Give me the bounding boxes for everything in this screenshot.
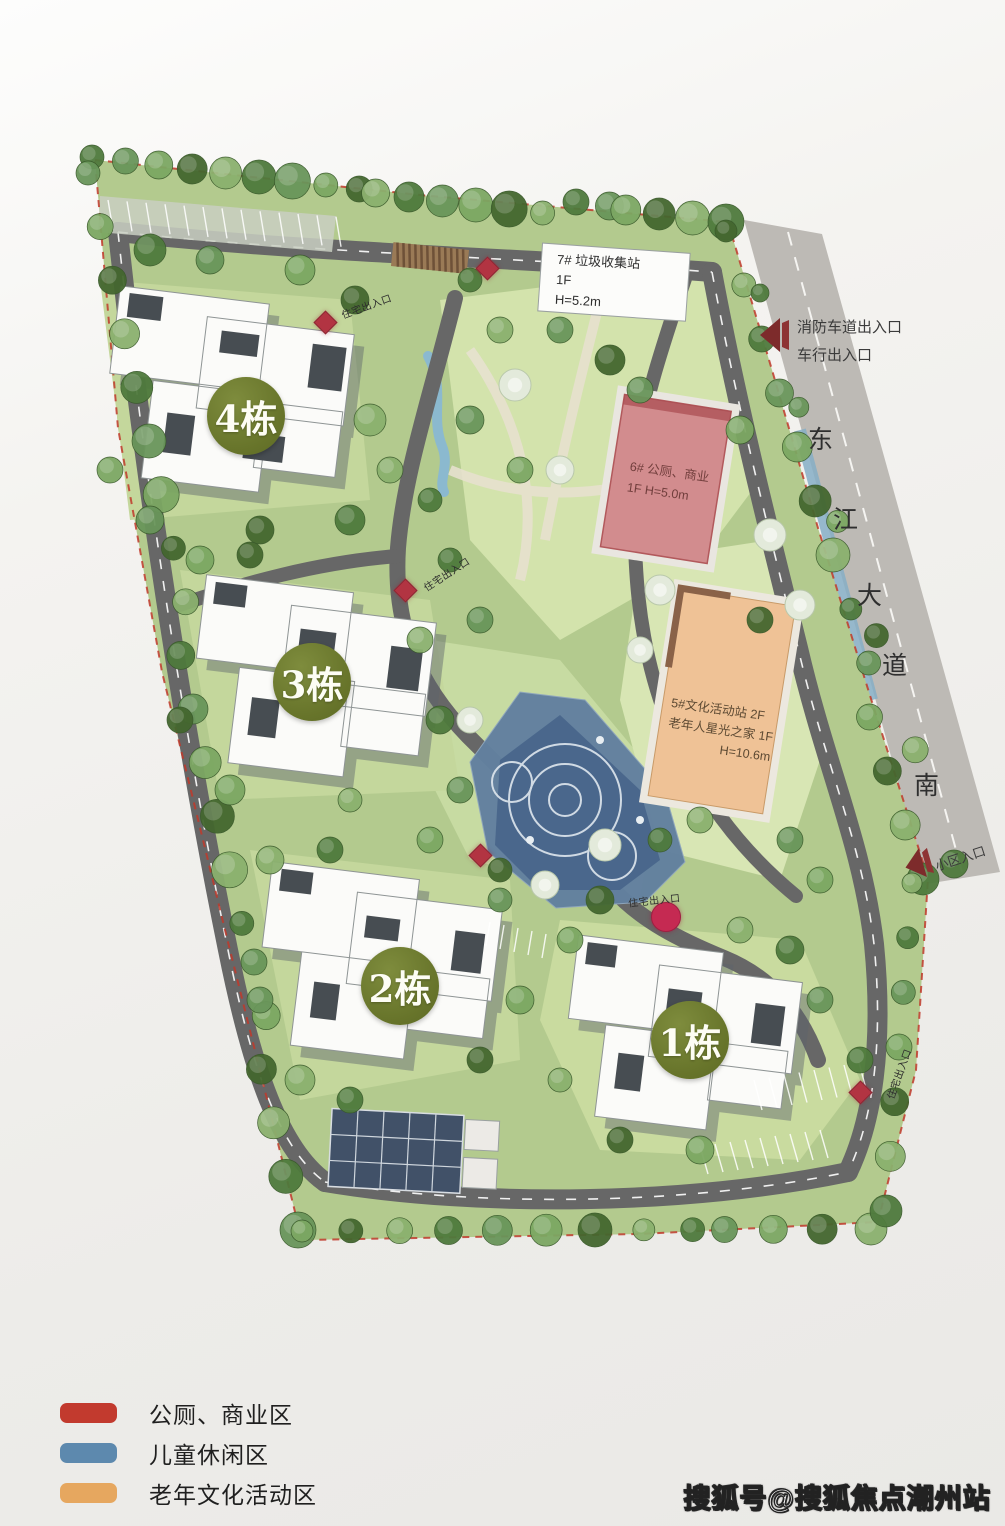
garbage-line3: H=5.2m bbox=[554, 290, 638, 314]
legend-item-elderly: 老年文化活动区 bbox=[60, 1482, 317, 1504]
legend-label-commercial: 公厕、商业区 bbox=[149, 1396, 293, 1430]
building-label-3: 3栋 bbox=[273, 643, 351, 721]
building-4-text: 4栋 bbox=[215, 389, 278, 443]
entrance-arrow-icon bbox=[758, 314, 792, 356]
fire-lane-entrance-label: 消防车道出入口 bbox=[797, 316, 902, 337]
legend-swatch-red bbox=[60, 1403, 117, 1423]
legend: 公厕、商业区 儿童休闲区 老年文化活动区 bbox=[60, 1402, 317, 1522]
site-plan: 1栋 2栋 3栋 4栋 7# 垃圾收集站 1F H=5.2m 6# 公厕、商业 … bbox=[0, 0, 1005, 1526]
legend-label-elderly: 老年文化活动区 bbox=[149, 1476, 317, 1510]
watermark: 搜狐号@搜狐焦点潮州站 bbox=[684, 1477, 991, 1516]
building-label-4: 4栋 bbox=[207, 377, 285, 455]
legend-swatch-blue bbox=[60, 1443, 117, 1463]
legend-label-children: 儿童休闲区 bbox=[149, 1436, 269, 1470]
legend-item-children: 儿童休闲区 bbox=[60, 1442, 317, 1464]
building-3-text: 3栋 bbox=[281, 655, 344, 709]
building-1-text: 1栋 bbox=[659, 1013, 722, 1067]
garbage-station-label: 7# 垃圾收集站 1F H=5.2m bbox=[554, 250, 640, 315]
road-name-char-3: 大 bbox=[857, 576, 882, 612]
vehicle-entrance-label: 车行出入口 bbox=[797, 344, 872, 365]
legend-swatch-orange bbox=[60, 1483, 117, 1503]
road-name-char-2: 江 bbox=[833, 500, 858, 536]
road-name-char-1: 东 bbox=[808, 420, 833, 456]
building-label-2: 2栋 bbox=[361, 947, 439, 1025]
building-label-1: 1栋 bbox=[651, 1001, 729, 1079]
site-plan-canvas bbox=[0, 0, 1005, 1526]
building-2-text: 2栋 bbox=[369, 959, 432, 1013]
road-name-char-5: 南 bbox=[914, 766, 939, 802]
legend-item-commercial: 公厕、商业区 bbox=[60, 1402, 317, 1424]
road-name-char-4: 道 bbox=[882, 646, 907, 682]
